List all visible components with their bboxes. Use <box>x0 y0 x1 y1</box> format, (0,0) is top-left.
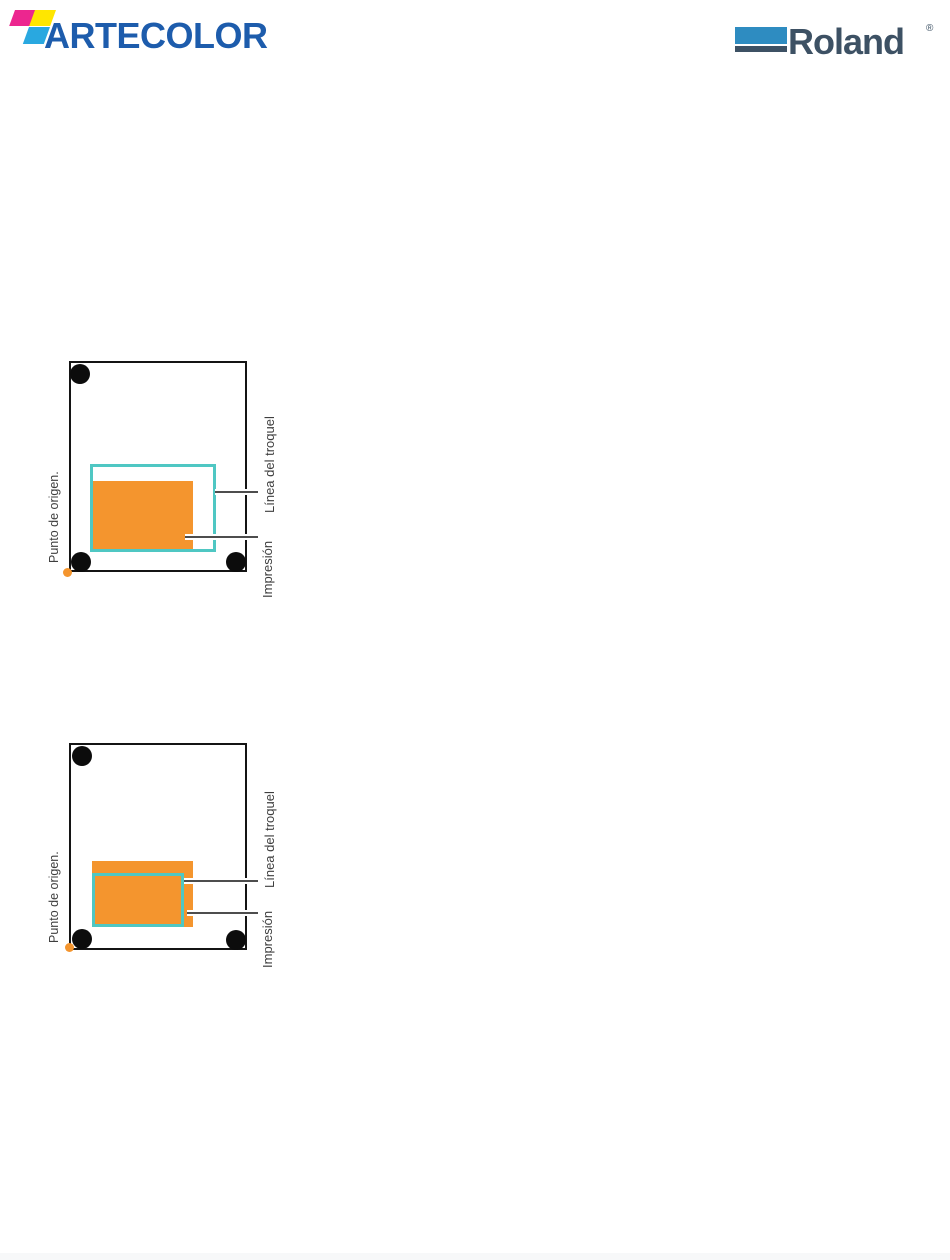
roland-logo-text: Roland <box>788 21 904 63</box>
roland-slate-bar-icon <box>735 46 787 52</box>
origin-point-label: Punto de origen. <box>46 851 62 943</box>
die-line-rect <box>92 873 184 927</box>
print-label: Impresión <box>260 541 276 598</box>
document-page: ARTECOLOR Roland ® Línea del troquel Imp… <box>0 0 950 1260</box>
page-bottom-edge <box>0 1253 950 1260</box>
leader-line-print <box>185 534 258 540</box>
crop-mark-circle-bottom-left <box>72 929 92 949</box>
crop-mark-circle-bottom-left <box>71 552 91 572</box>
roland-blue-bar-icon <box>735 27 787 44</box>
print-label: Impresión <box>260 911 276 968</box>
crop-mark-circle-bottom-right <box>226 552 246 572</box>
leader-line-die <box>184 878 258 884</box>
crop-mark-circle-top-left <box>70 364 90 384</box>
leader-line-print <box>187 910 258 916</box>
die-line-label: Línea del troquel <box>262 791 278 888</box>
crop-mark-circle-top-left <box>72 746 92 766</box>
origin-point-dot <box>65 943 74 952</box>
artecolor-logo-text: ARTECOLOR <box>44 15 268 57</box>
roland-registered-mark: ® <box>926 23 933 34</box>
origin-point-dot <box>63 568 72 577</box>
die-line-label: Línea del troquel <box>262 416 278 513</box>
origin-point-label: Punto de origen. <box>46 471 62 563</box>
crop-mark-circle-bottom-right <box>226 930 246 950</box>
leader-line-die <box>215 489 258 495</box>
